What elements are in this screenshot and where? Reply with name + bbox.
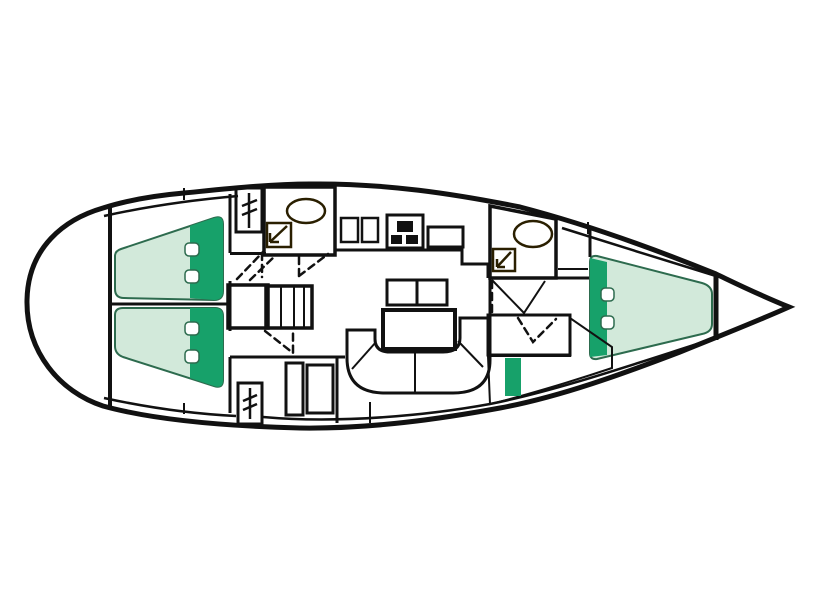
door-symbols <box>237 253 556 353</box>
forward-head <box>490 206 556 278</box>
sideboard-bench <box>387 280 417 305</box>
hanging-locker-icon <box>242 193 257 228</box>
pillow-notch <box>601 316 614 329</box>
seat-berth-pillow <box>505 358 521 396</box>
pillow-notch <box>185 243 199 256</box>
door-forward-head <box>492 280 545 313</box>
aft-cabin-starboard <box>115 308 223 387</box>
aft-berth-port-pillow <box>190 217 223 300</box>
hanging-locker-icon <box>243 388 257 419</box>
forward-cabinet <box>488 315 570 355</box>
pillow-notch <box>601 288 614 301</box>
pillow-notch <box>185 322 199 335</box>
u-settee <box>347 318 490 393</box>
washbasin-icon <box>514 221 552 247</box>
sink <box>341 218 358 242</box>
boat-floorplan <box>0 0 817 612</box>
companionway <box>228 285 312 328</box>
sink <box>362 218 378 242</box>
cabinet-white <box>307 365 333 413</box>
burner-icon <box>397 221 413 232</box>
saloon <box>286 280 490 415</box>
shower-icon <box>267 223 291 247</box>
hanging-locker-top <box>236 188 262 232</box>
door-aft-cabin-starboard <box>265 331 293 353</box>
galley-counter-front <box>336 250 488 278</box>
aft-head <box>264 187 335 255</box>
shower-icon <box>493 249 515 271</box>
floorplan-svg <box>0 0 817 612</box>
burner-icon <box>406 235 418 244</box>
washbasin-icon <box>287 199 325 223</box>
door-forward-cabin <box>518 318 556 342</box>
sideboard-bench <box>417 280 447 305</box>
companionway-steps <box>266 286 312 328</box>
galley <box>341 215 463 248</box>
burner-icon <box>391 235 402 244</box>
oven-counter <box>428 227 463 247</box>
cabinet-wood <box>286 363 303 415</box>
saloon-table <box>383 310 455 349</box>
aft-berth-starboard-pillow <box>190 308 223 387</box>
pillow-notch <box>185 350 199 363</box>
chart-table <box>228 285 268 328</box>
stove <box>387 215 423 248</box>
hanging-locker-bottom <box>238 383 262 424</box>
pillow-notch <box>185 270 199 283</box>
door-aft-cabin-port <box>237 253 262 279</box>
aft-cabin-port <box>115 217 223 300</box>
